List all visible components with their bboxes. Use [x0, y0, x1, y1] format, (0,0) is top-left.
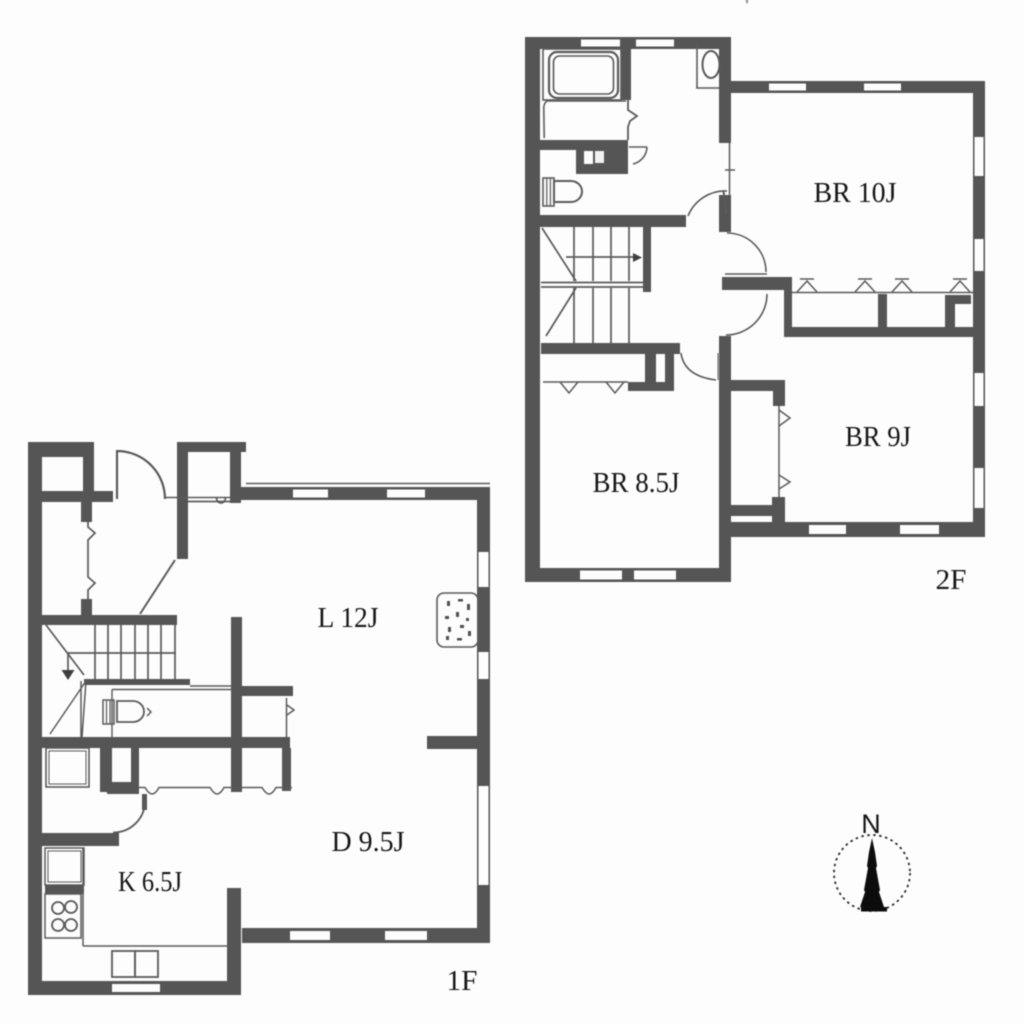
- svg-text:BR 8.5J: BR 8.5J: [593, 468, 680, 499]
- svg-text:D 9.5J: D 9.5J: [332, 827, 405, 858]
- svg-text:2F: 2F: [936, 565, 967, 596]
- svg-text:BR 9J: BR 9J: [845, 422, 911, 453]
- svg-text:K 6.5J: K 6.5J: [118, 867, 182, 898]
- svg-text:1F: 1F: [447, 966, 478, 997]
- svg-text:N: N: [861, 809, 881, 839]
- svg-text:L 12J: L 12J: [318, 603, 379, 634]
- svg-text:BR 10J: BR 10J: [814, 178, 897, 209]
